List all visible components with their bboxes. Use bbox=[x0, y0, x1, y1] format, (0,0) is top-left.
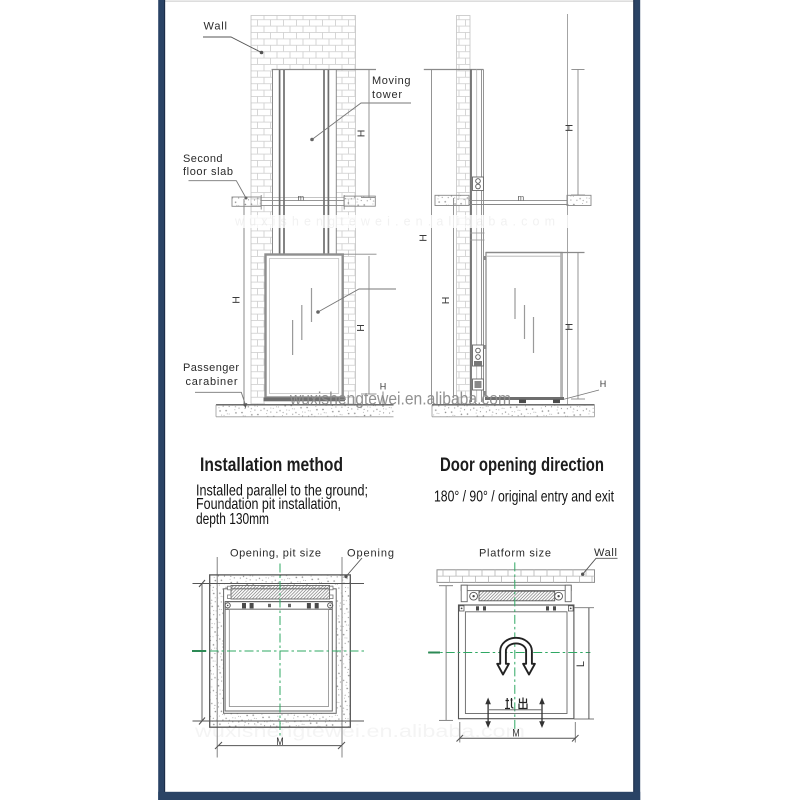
svg-text:H: H bbox=[355, 324, 367, 332]
svg-text:180° / 90° / original entry an: 180° / 90° / original entry and exit bbox=[434, 489, 614, 506]
svg-text:wuxishengtewei.en.alibaba.com: wuxishengtewei.en.alibaba.com bbox=[289, 389, 511, 409]
svg-text:H: H bbox=[564, 323, 576, 331]
svg-text:H: H bbox=[418, 234, 430, 242]
svg-text:tower: tower bbox=[372, 89, 402, 101]
svg-text:Platform size: Platform size bbox=[479, 548, 551, 560]
svg-text:H: H bbox=[564, 124, 576, 132]
svg-text:wuxishengtewei.en.alibaba.com: wuxishengtewei.en.alibaba.com bbox=[234, 215, 555, 229]
svg-text:H: H bbox=[356, 130, 368, 138]
svg-text:Opening: Opening bbox=[347, 548, 394, 560]
svg-text:carabiner: carabiner bbox=[186, 376, 238, 388]
svg-text:L: L bbox=[575, 661, 587, 667]
svg-text:Wall: Wall bbox=[204, 21, 228, 33]
svg-text:Second: Second bbox=[183, 153, 223, 165]
svg-text:depth 130mm: depth 130mm bbox=[196, 511, 269, 528]
svg-text:H: H bbox=[440, 297, 452, 305]
svg-text:Installation method: Installation method bbox=[200, 455, 343, 476]
svg-text:Opening, pit size: Opening, pit size bbox=[230, 548, 321, 560]
svg-text:H: H bbox=[600, 379, 607, 389]
svg-text:Moving: Moving bbox=[372, 75, 411, 87]
svg-text:wuxishengtewei.en.alibaba.com: wuxishengtewei.en.alibaba.com bbox=[194, 721, 525, 741]
svg-text:floor slab: floor slab bbox=[183, 166, 233, 178]
svg-text:Passenger: Passenger bbox=[183, 362, 239, 374]
svg-text:m: m bbox=[518, 194, 525, 203]
svg-text:H: H bbox=[231, 296, 243, 304]
svg-text:m: m bbox=[298, 193, 305, 202]
svg-text:Wall: Wall bbox=[594, 547, 617, 559]
svg-text:Door opening direction: Door opening direction bbox=[440, 455, 604, 476]
